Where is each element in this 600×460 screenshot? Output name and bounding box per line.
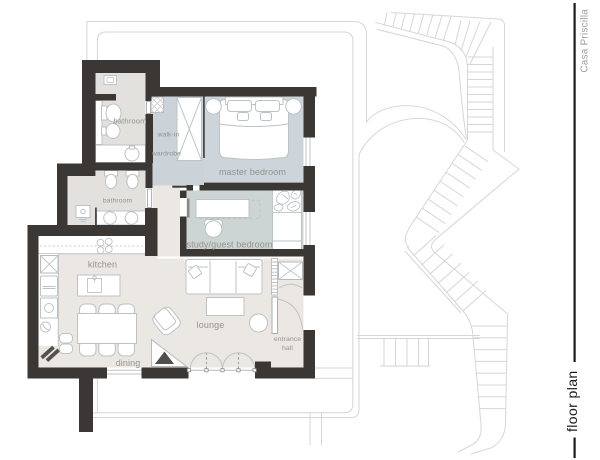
- svg-text:walk-in: walk-in: [157, 132, 180, 139]
- svg-text:master bedroom: master bedroom: [219, 167, 286, 177]
- svg-text:study/guest bedroom: study/guest bedroom: [187, 240, 273, 250]
- svg-text:floor plan: floor plan: [564, 370, 580, 432]
- svg-text:bathroom: bathroom: [103, 197, 133, 204]
- svg-text:hall: hall: [282, 345, 293, 352]
- svg-text:bathroom: bathroom: [113, 117, 146, 126]
- svg-text:entrance: entrance: [274, 336, 301, 343]
- svg-text:kitchen: kitchen: [88, 260, 117, 270]
- svg-text:dining: dining: [116, 358, 141, 368]
- svg-text:lounge: lounge: [197, 320, 225, 330]
- svg-text:Casa Priscilla: Casa Priscilla: [580, 9, 591, 73]
- svg-text:wardrobe: wardrobe: [151, 151, 181, 158]
